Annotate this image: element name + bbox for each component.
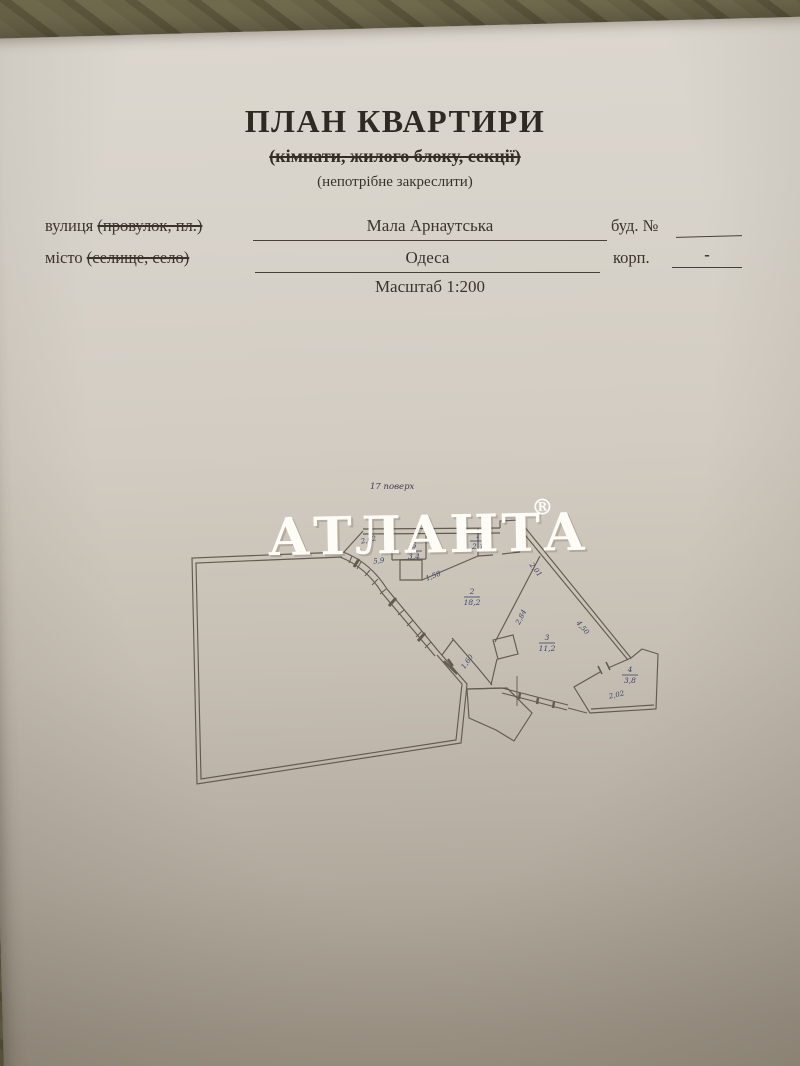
building-label: буд. № bbox=[611, 216, 658, 236]
corpus-label: корп. bbox=[613, 248, 650, 268]
subtitle-struck-text: (кімнати, жилого блоку, секції) bbox=[269, 146, 520, 166]
page-title: ПЛАН КВАРТИРИ bbox=[0, 103, 790, 140]
floor-label: 17 поверх bbox=[370, 482, 415, 492]
room-number-label: 4 bbox=[627, 665, 633, 674]
dim-label: 2,02 bbox=[607, 689, 625, 700]
street-underline bbox=[253, 239, 607, 241]
street-label-struck: (провулок, пл.) bbox=[97, 216, 202, 235]
dim-label: 1,58 bbox=[425, 569, 443, 582]
scale-label: Масштаб 1:200 bbox=[240, 277, 620, 297]
city-label-text: місто bbox=[45, 248, 83, 267]
photo-of-document: ПЛАН КВАРТИРИ (кімнати, жилого блоку, се… bbox=[0, 0, 800, 1066]
page-subtitle-struck: (кімнати, жилого блоку, секції) bbox=[0, 146, 790, 167]
corpus-underline bbox=[672, 266, 742, 268]
floor-plan-area: 63,412,1218,2311,243,82,625,91,582,012,8… bbox=[180, 472, 680, 817]
room-area-label: 18,2 bbox=[464, 598, 481, 607]
room-area-label: 3,8 bbox=[624, 676, 636, 685]
street-label-text: вулиця bbox=[45, 216, 93, 235]
street-value: Мала Арнаутська bbox=[255, 216, 605, 236]
city-label: місто (селище, село) bbox=[45, 248, 189, 268]
floor-plan-drawing: 63,412,1218,2311,243,82,625,91,582,012,8… bbox=[180, 472, 680, 817]
corpus-value: - bbox=[672, 245, 742, 265]
dim-label: 2,84 bbox=[514, 608, 529, 626]
watermark: АТЛАНТА АТЛАНТА ® bbox=[267, 494, 591, 571]
watermark-registered-icon: ® bbox=[531, 494, 553, 520]
room-number-label: 2 bbox=[469, 587, 475, 596]
room-area-label: 11,2 bbox=[539, 644, 556, 653]
street-label: вулиця (провулок, пл.) bbox=[45, 216, 202, 236]
strike-instruction-note: (непотрібне закреслити) bbox=[0, 174, 790, 191]
room-number-label: 3 bbox=[545, 633, 550, 642]
city-underline bbox=[255, 271, 600, 273]
city-value: Одеса bbox=[255, 248, 600, 268]
city-label-struck: (селище, село) bbox=[87, 248, 190, 267]
dim-label: 4,50 bbox=[574, 618, 591, 636]
